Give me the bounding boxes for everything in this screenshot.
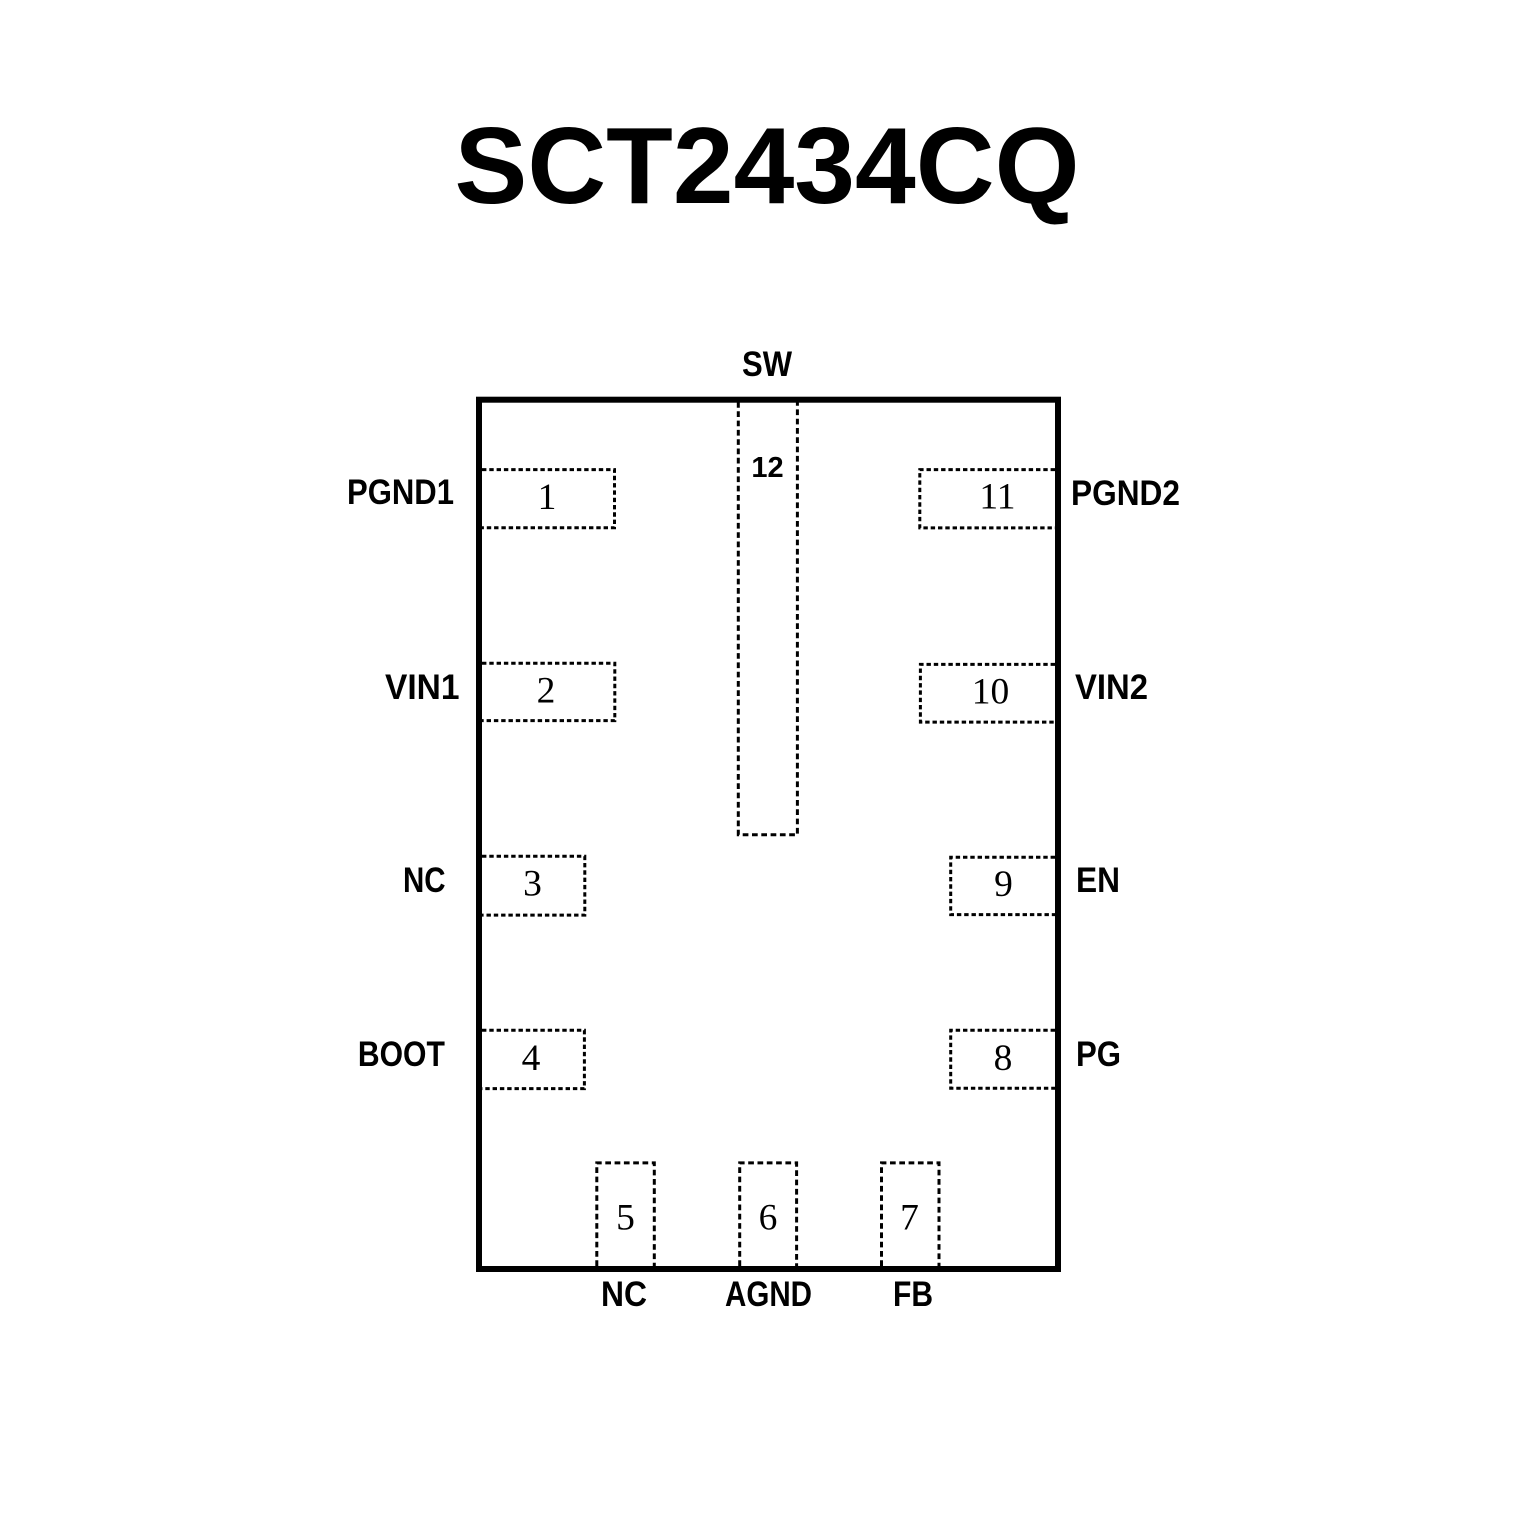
svg-text:7: 7 [900,1198,919,1239]
svg-text:10: 10 [972,672,1010,713]
svg-text:VIN2: VIN2 [1075,667,1148,707]
svg-text:12: 12 [751,452,783,484]
svg-text:SCT2434CQ: SCT2434CQ [455,105,1080,227]
svg-text:8: 8 [994,1038,1013,1079]
svg-text:PGND1: PGND1 [347,472,454,512]
svg-text:NC: NC [403,860,446,900]
svg-text:PGND2: PGND2 [1071,473,1180,513]
svg-text:PG: PG [1076,1034,1121,1074]
svg-text:VIN1: VIN1 [385,667,460,707]
svg-text:SW: SW [742,344,792,384]
svg-text:FB: FB [893,1274,933,1314]
svg-text:4: 4 [522,1038,541,1079]
svg-text:1: 1 [538,477,557,518]
svg-text:6: 6 [759,1198,778,1239]
svg-text:2: 2 [537,671,556,712]
svg-text:3: 3 [523,864,542,905]
svg-text:NC: NC [601,1274,647,1314]
svg-text:9: 9 [994,864,1013,905]
svg-text:AGND: AGND [725,1274,812,1314]
svg-text:EN: EN [1076,860,1120,900]
svg-text:11: 11 [979,477,1015,518]
svg-text:5: 5 [616,1198,635,1239]
svg-text:BOOT: BOOT [358,1034,445,1074]
